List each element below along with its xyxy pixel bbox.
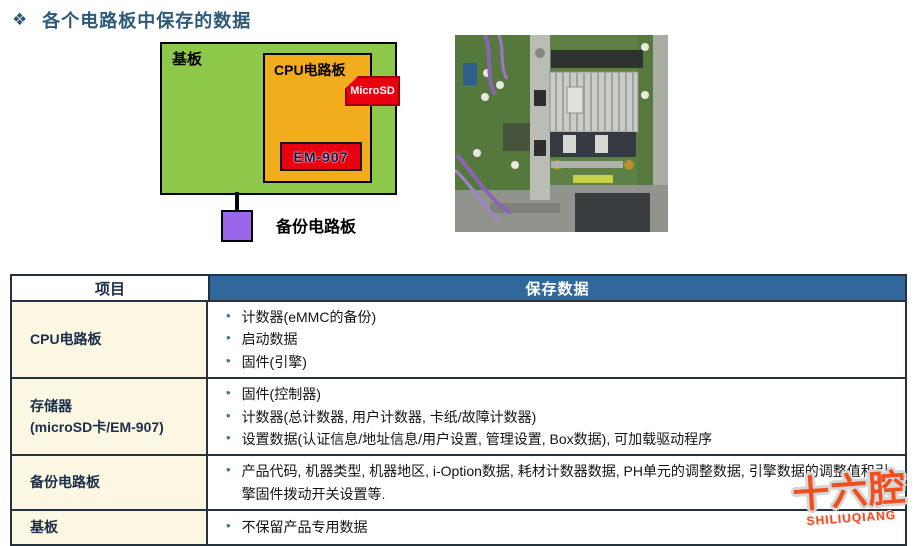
point-text: 设置数据(认证信息/地址信息/用户设置, 管理设置, Box数据), 可加载驱动… <box>242 428 713 450</box>
bullet-icon: • <box>218 406 231 428</box>
data-point: •固件(引擎) <box>218 351 895 373</box>
data-point: •计数器(eMMC的备份) <box>218 306 895 328</box>
point-text: 固件(引擎) <box>242 351 307 373</box>
connector-line <box>235 192 239 212</box>
data-point: •计数器(总计数器, 用户计数器, 卡纸/故障计数器) <box>218 406 895 428</box>
mainboard-photo <box>455 35 668 232</box>
data-point: •启动数据 <box>218 328 895 350</box>
point-text: 计数器(总计数器, 用户计数器, 卡纸/故障计数器) <box>242 406 537 428</box>
storage-data-table: 项目 保存数据 CPU电路板 •计数器(eMMC的备份) •启动数据 •固件(引… <box>10 274 907 546</box>
watermark-logo: 十六腔 SHILIUQIANG <box>782 467 916 529</box>
bullet-icon: • <box>218 460 231 505</box>
table-row-base-board: 基板 •不保留产品专用数据 <box>12 509 905 544</box>
point-text: 固件(控制器) <box>242 383 321 405</box>
item-text: 存储器 <box>30 396 198 417</box>
backup-board-label: 备份电路板 <box>276 213 356 237</box>
header-item: 项目 <box>12 276 210 300</box>
point-list: •固件(控制器) •计数器(总计数器, 用户计数器, 卡纸/故障计数器) •设置… <box>218 383 895 450</box>
row-item-label: 备份电路板 <box>12 456 208 509</box>
item-text: CPU电路板 <box>30 329 198 350</box>
data-point: •固件(控制器) <box>218 383 895 405</box>
bullet-icon: • <box>218 351 231 373</box>
table-row-cpu-board: CPU电路板 •计数器(eMMC的备份) •启动数据 •固件(引擎) <box>12 300 905 377</box>
bullet-icon: • <box>218 306 231 328</box>
row-data-cell: •固件(控制器) •计数器(总计数器, 用户计数器, 卡纸/故障计数器) •设置… <box>208 379 905 454</box>
item-subtext: (microSD卡/EM-907) <box>30 417 198 438</box>
row-data-cell: •计数器(eMMC的备份) •启动数据 •固件(引擎) <box>208 302 905 377</box>
bullet-icon: • <box>218 428 231 450</box>
bullet-icon: • <box>218 383 231 405</box>
table-header-row: 项目 保存数据 <box>12 276 905 300</box>
header-data: 保存数据 <box>210 276 905 300</box>
row-item-label: 基板 <box>12 511 208 544</box>
point-list: •计数器(eMMC的备份) •启动数据 •固件(引擎) <box>218 306 895 373</box>
bullet-icon: • <box>218 328 231 350</box>
table-row-backup-board: 备份电路板 •产品代码, 机器类型, 机器地区, i-Option数据, 耗材计… <box>12 454 905 509</box>
page-title: ❖ 各个电路板中保存的数据 <box>12 7 251 33</box>
point-text: 计数器(eMMC的备份) <box>242 306 377 328</box>
table-row-storage: 存储器 (microSD卡/EM-907) •固件(控制器) •计数器(总计数器… <box>12 377 905 454</box>
base-board-label: 基板 <box>172 48 202 69</box>
cpu-board-label: CPU电路板 <box>274 60 346 80</box>
row-item-label: CPU电路板 <box>12 302 208 377</box>
row-item-label: 存储器 (microSD卡/EM-907) <box>12 379 208 454</box>
point-text: 不保留产品专用数据 <box>242 516 368 538</box>
item-text: 基板 <box>30 517 198 538</box>
em907-chip-tag: EM-907 <box>280 142 362 171</box>
data-point: •设置数据(认证信息/地址信息/用户设置, 管理设置, Box数据), 可加载驱… <box>218 428 895 450</box>
point-text: 启动数据 <box>242 328 298 350</box>
diamond-bullet-icon: ❖ <box>12 10 27 30</box>
item-text: 备份电路板 <box>30 472 198 493</box>
bullet-icon: • <box>218 516 231 538</box>
page-title-text: 各个电路板中保存的数据 <box>42 7 251 33</box>
backup-board-box <box>221 210 253 242</box>
